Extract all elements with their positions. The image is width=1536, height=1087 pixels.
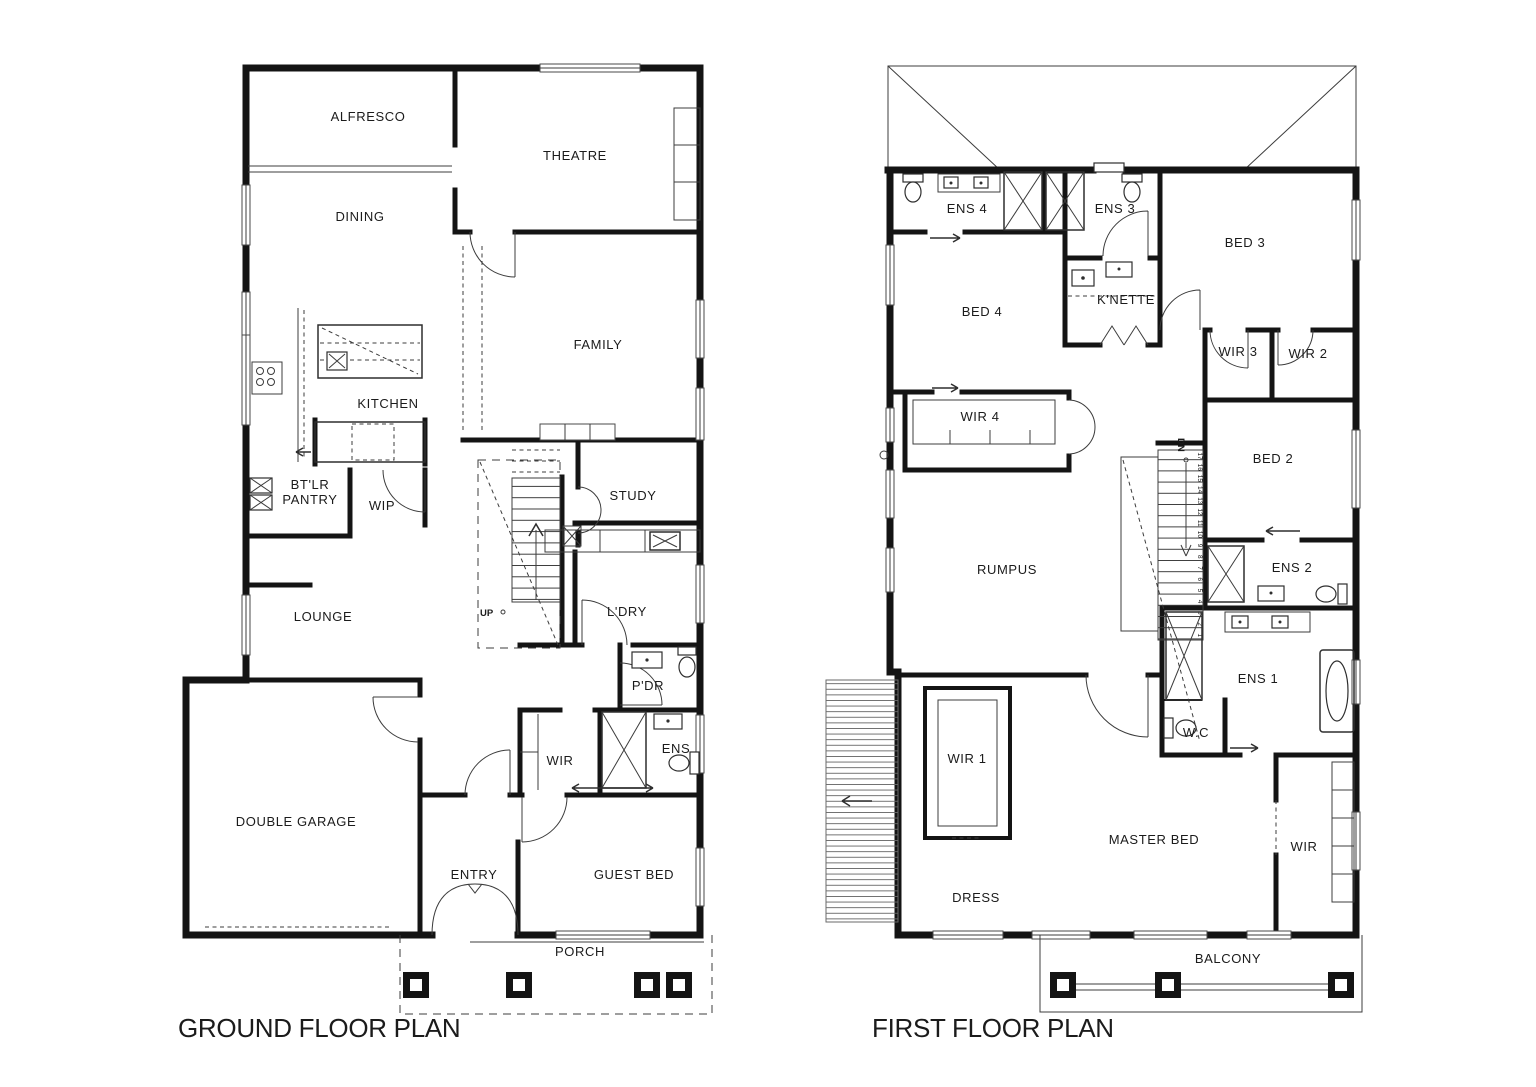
room-label-master-bed: MASTER BED [1109,832,1200,847]
room-label-ens: ENS [662,741,691,756]
stair-number: 9 [1196,544,1203,548]
room-label-rumpus: RUMPUS [977,562,1037,577]
stair-number: 7 [1196,566,1203,570]
ground-floor-title: GROUND FLOOR PLAN [178,1013,460,1043]
first-interior-walls [880,170,1356,935]
room-label-study: STUDY [609,488,656,503]
room-label-dress: DRESS [952,890,1000,905]
stair-number: 5 [1196,589,1203,593]
room-label-wir: WIR [546,753,573,768]
room-label-wir3: WIR 3 [1218,344,1257,359]
room-label-double-garage: DOUBLE GARAGE [236,814,357,829]
first-lower-roof-strip [826,680,898,922]
room-label-btlr-pantry-line1: BT'LR [291,477,330,492]
floor-plan-page: ALFRESCO THEATRE DINING FAMILY KITCHEN B… [0,0,1536,1087]
room-label-wir4: WIR 4 [960,409,999,424]
stair-number: 16 [1196,464,1203,472]
ground-stairs [478,450,581,648]
room-label-knette: K'NETTE [1097,292,1155,307]
room-label-bed3: BED 3 [1225,235,1266,250]
walkthrough-arrow-icon [572,784,653,792]
first-labels: ENS 4 ENS 3 BED 3 BED 4 K'NETTE WIR 3 WI… [872,201,1328,1043]
first-balcony [1040,935,1362,1012]
first-floor-plan: 17 16 15 14 13 12 11 10 9 8 7 6 5 4 3 2 … [826,66,1362,1043]
first-outer-walls [888,163,1356,935]
room-label-pdr: P'DR [632,678,664,693]
stairs-up-label: UP [480,608,494,619]
room-label-family: FAMILY [574,337,623,352]
stair-number: 10 [1196,531,1203,539]
room-label-wir1: WIR 1 [947,751,986,766]
ground-labels: ALFRESCO THEATRE DINING FAMILY KITCHEN B… [178,109,690,1043]
room-label-bed4: BED 4 [962,304,1003,319]
wir4-door-arrow-icon [932,384,958,392]
stair-number: 13 [1196,497,1203,505]
room-label-ens4: ENS 4 [947,201,988,216]
room-label-porch: PORCH [555,944,605,959]
room-label-alfresco: ALFRESCO [331,109,406,124]
first-floor-title: FIRST FLOOR PLAN [872,1013,1114,1043]
room-label-balcony: BALCONY [1195,951,1261,966]
room-label-wir2: WIR 2 [1288,346,1327,361]
room-label-dining: DINING [335,209,384,224]
ground-floor-plan: ALFRESCO THEATRE DINING FAMILY KITCHEN B… [178,64,712,1043]
room-label-lounge: LOUNGE [294,609,353,624]
room-label-entry: ENTRY [451,867,498,882]
stair-number: 4 [1196,600,1203,604]
room-label-btlr-pantry-line2: PANTRY [282,492,337,507]
room-label-wir-master: WIR [1290,839,1317,854]
ground-bathroom-fixtures [520,647,699,792]
stair-number: 8 [1196,555,1203,559]
room-label-theatre: THEATRE [543,148,607,163]
room-label-kitchen: KITCHEN [357,396,418,411]
stair-number: 11 [1196,520,1203,527]
room-label-ens2: ENS 2 [1272,560,1313,575]
room-label-guest-bed: GUEST BED [594,867,674,882]
first-roof-outline [888,66,1356,170]
wc-door-arrow-icon [1230,744,1258,752]
stair-number: 14 [1196,486,1203,494]
room-label-wc: W.C [1183,725,1209,740]
first-fixtures [903,172,1354,902]
stair-number: 17 [1196,452,1203,460]
ens2-door-arrow-icon [1266,527,1300,535]
stairs-dn-label: DN [1175,438,1186,452]
bed4-door-arrow-icon [930,234,960,242]
stair-number: 15 [1196,475,1203,483]
stair-number: 6 [1196,577,1203,581]
room-label-ens1: ENS 1 [1238,671,1279,686]
room-label-wip: WIP [369,498,395,513]
floor-plan-drawing: ALFRESCO THEATRE DINING FAMILY KITCHEN B… [0,0,1536,1087]
room-label-ldry: L'DRY [607,604,647,619]
room-label-ens3: ENS 3 [1095,201,1136,216]
room-label-bed2: BED 2 [1253,451,1294,466]
stair-number: 12 [1196,508,1203,516]
